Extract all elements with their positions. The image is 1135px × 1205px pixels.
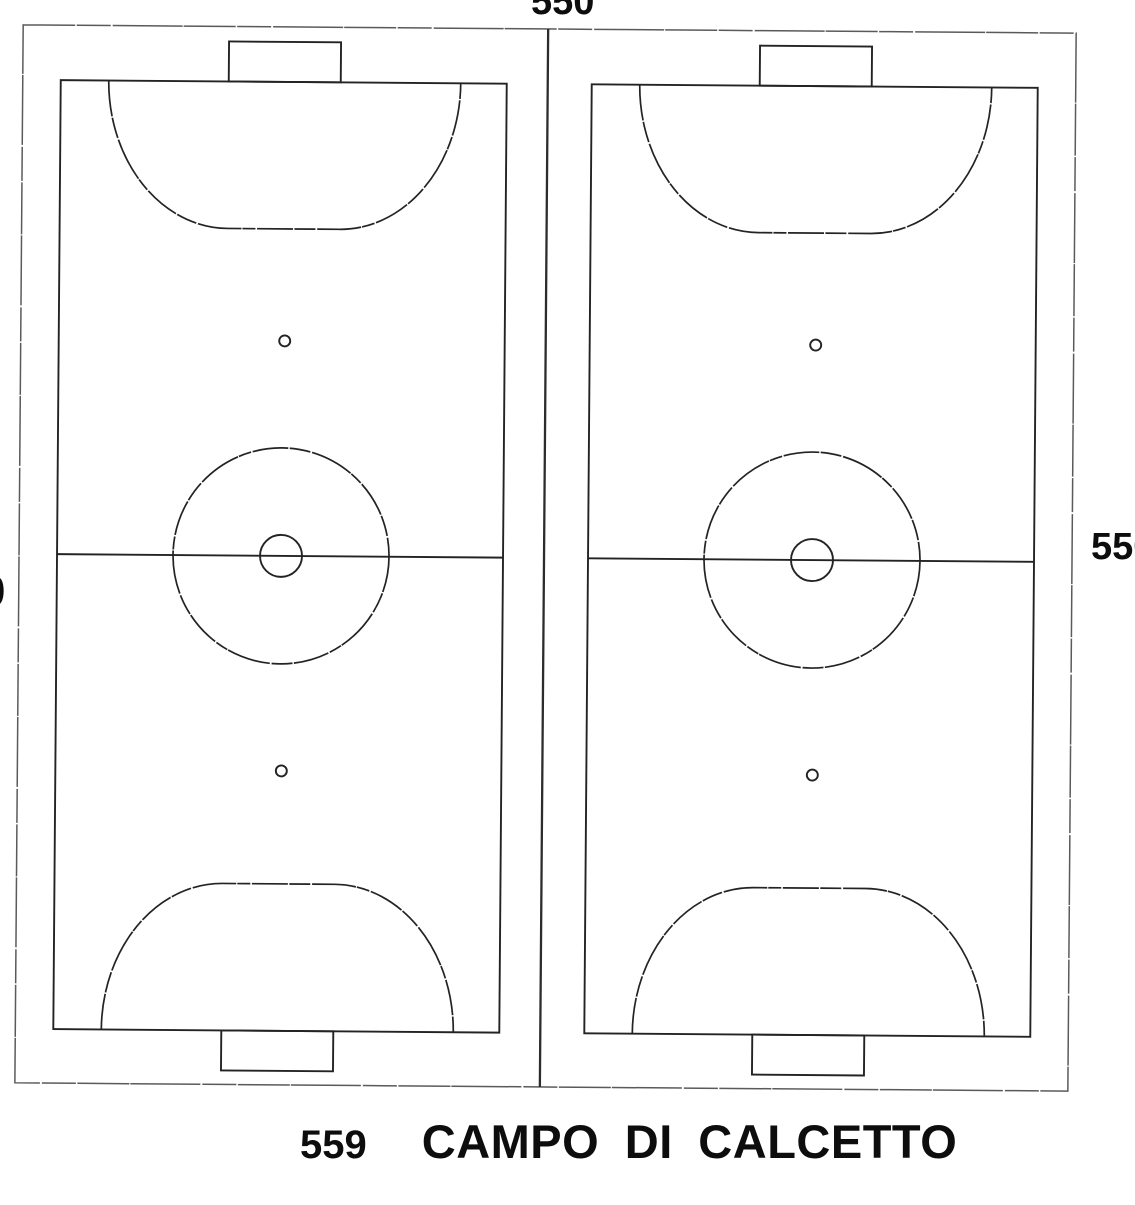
- drawing-canvas: [0, 0, 1135, 1205]
- sheet: [15, 25, 1076, 1091]
- pitch-left: [53, 40, 507, 1072]
- drawing-number: 559: [300, 1123, 367, 1168]
- drawing-caption: 559 CAMPO DI CALCETTO: [300, 1114, 957, 1169]
- dimension-left-partial: 0: [0, 570, 5, 614]
- sheet-divider: [540, 29, 548, 1087]
- pitch-right: [584, 44, 1038, 1076]
- sheet-frame: [15, 25, 1076, 1091]
- dimension-top: 550: [531, 0, 594, 21]
- dimension-right: 550: [1091, 528, 1135, 566]
- drawing-title: CAMPO DI CALCETTO: [422, 1114, 958, 1169]
